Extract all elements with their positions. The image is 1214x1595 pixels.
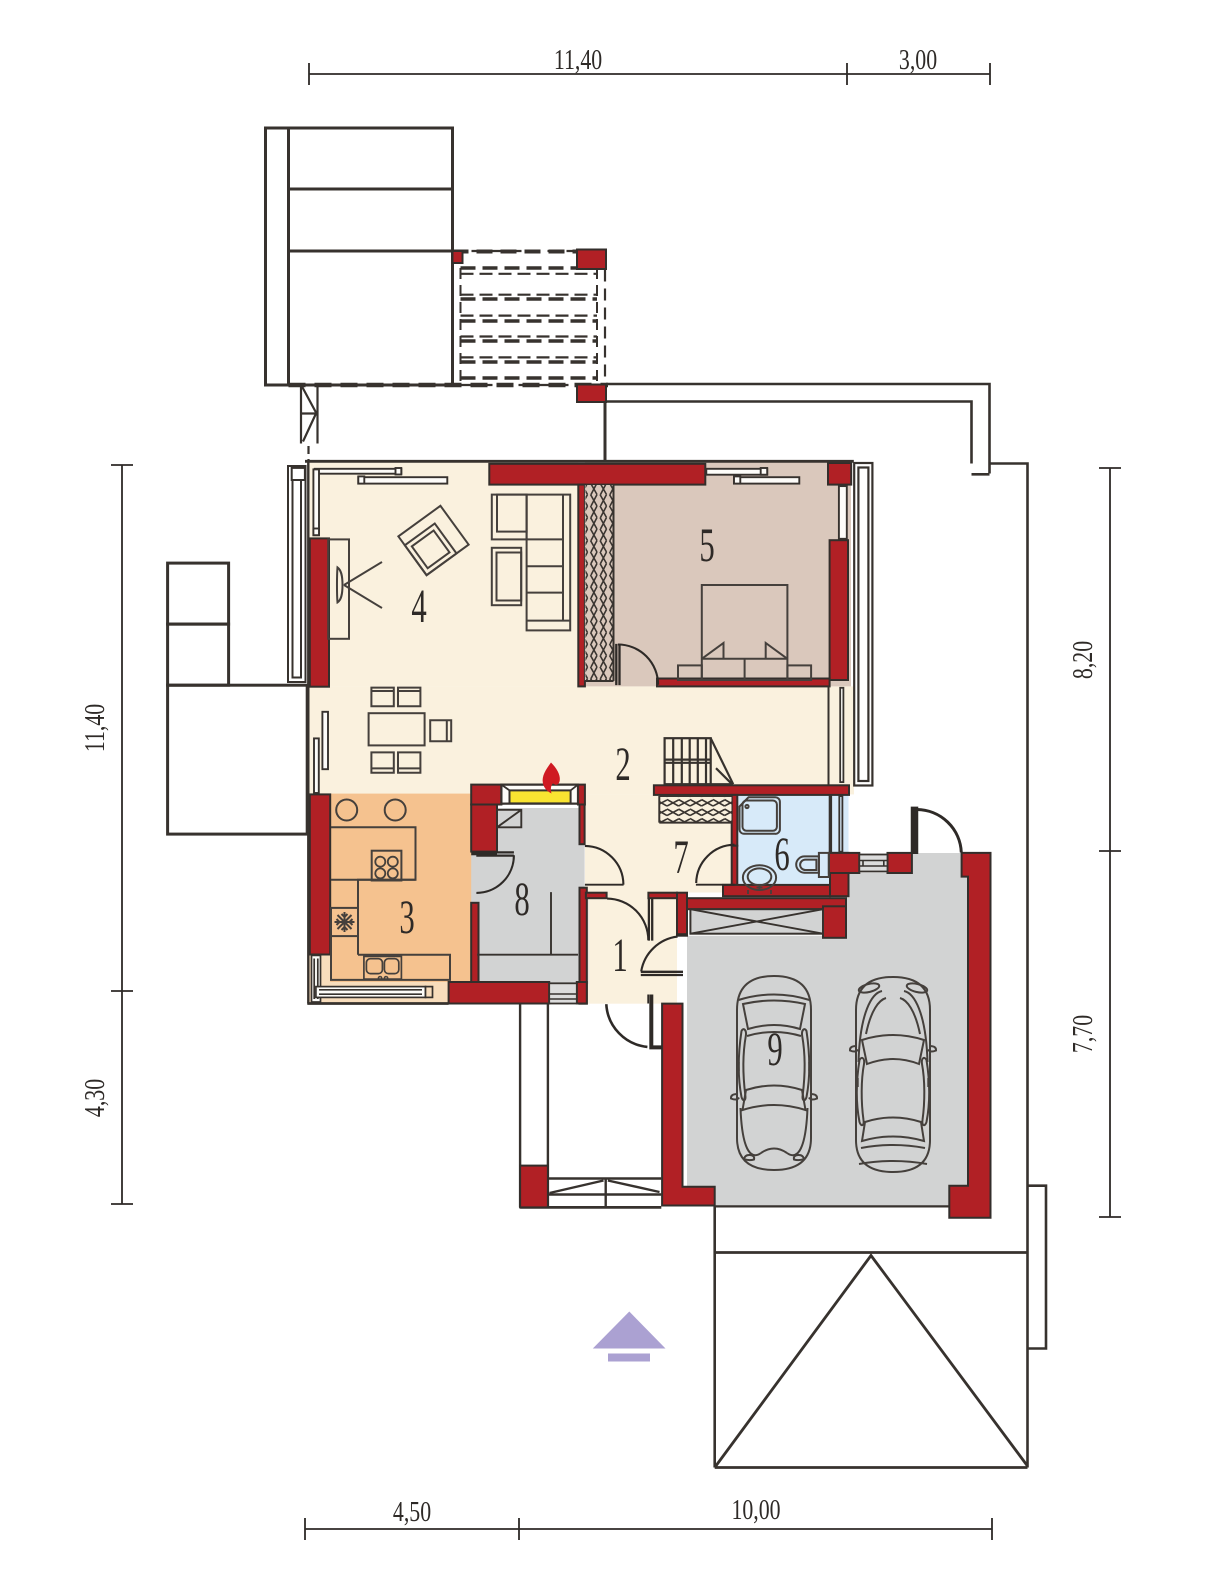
svg-text:4,50: 4,50 [393, 1498, 431, 1528]
svg-text:11,40: 11,40 [554, 46, 602, 76]
svg-text:7,70: 7,70 [1069, 1015, 1099, 1053]
svg-text:4,30: 4,30 [81, 1079, 111, 1117]
svg-text:7: 7 [673, 830, 688, 884]
svg-text:9: 9 [767, 1022, 782, 1076]
svg-text:6: 6 [774, 827, 789, 881]
svg-text:8,20: 8,20 [1069, 641, 1099, 679]
svg-text:3: 3 [399, 890, 414, 944]
svg-text:10,00: 10,00 [731, 1496, 780, 1526]
svg-text:2: 2 [615, 737, 630, 791]
svg-text:8: 8 [514, 872, 529, 926]
svg-text:4: 4 [411, 579, 426, 633]
svg-text:1: 1 [612, 928, 627, 982]
svg-text:5: 5 [699, 518, 714, 572]
svg-text:11,40: 11,40 [81, 704, 111, 752]
svg-text:3,00: 3,00 [899, 46, 937, 76]
